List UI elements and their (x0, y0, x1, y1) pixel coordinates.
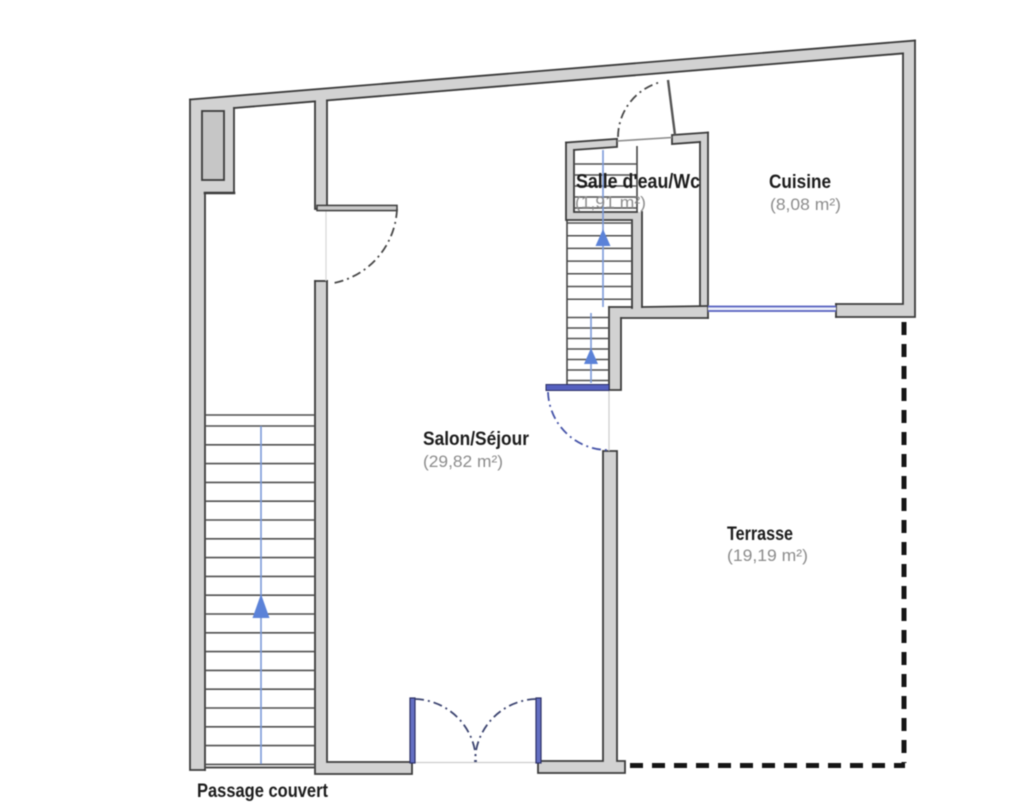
svg-text:Cuisine: Cuisine (769, 172, 831, 193)
svg-text:Salon/Séjour: Salon/Séjour (423, 429, 530, 450)
svg-text:Salle d'eau/Wc: Salle d'eau/Wc (576, 171, 700, 193)
svg-text:Passage couvert: Passage couvert (197, 781, 329, 802)
svg-text:(1,91 m²): (1,91 m²) (575, 194, 646, 212)
svg-text:(19,19 m²): (19,19 m²) (727, 547, 808, 565)
svg-text:(29,82 m²): (29,82 m²) (423, 453, 503, 471)
svg-text:(8,08 m²): (8,08 m²) (770, 196, 841, 214)
svg-text:Terrasse: Terrasse (727, 524, 793, 545)
